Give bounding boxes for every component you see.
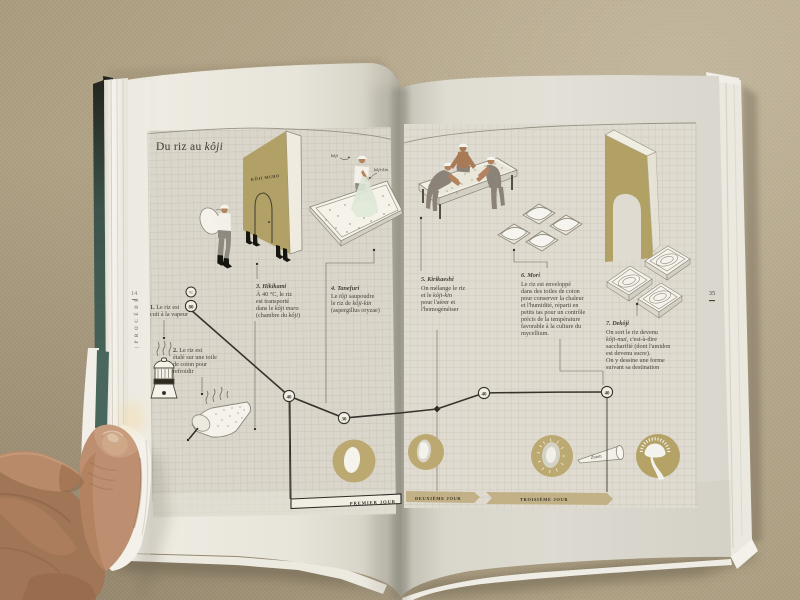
svg-text:cuit à la vapeur: cuit à la vapeur [150,311,188,318]
svg-text:est devenu sucre).: est devenu sucre). [606,350,651,357]
svg-text:saccharifié (dont l'amidon: saccharifié (dont l'amidon [606,343,670,350]
svg-text:de coton pour: de coton pour [173,361,207,368]
svg-text:suivant sa destination: suivant sa destination [606,364,659,371]
svg-text:6. Mori: 6. Mori [521,272,540,279]
svg-text:DEUXIÈME JOUR: DEUXIÈME JOUR [415,496,461,501]
svg-text:1. Le riz est: 1. Le riz est [150,304,179,311]
svg-text:30: 30 [342,417,348,422]
svg-text:TROISIÈME JOUR: TROISIÈME JOUR [520,497,568,502]
svg-text:°C: °C [189,290,194,295]
svg-text:7. Dekôji: 7. Dekôji [606,320,629,327]
svg-text:est transporté: est transporté [256,298,289,305]
svg-text:pour conserver la chaleur: pour conserver la chaleur [521,295,584,302]
svg-text:5. Kirikaeshi: 5. Kirikaeshi [421,276,454,283]
svg-text:étalé sur une toile: étalé sur une toile [173,354,217,361]
svg-text:3. Hikikami: 3. Hikikami [255,283,287,290]
svg-text:À 40 °C, le riz: À 40 °C, le riz [256,290,292,298]
svg-text:dans le kôji muro: dans le kôji muro [256,305,299,312]
svg-text:et le kôji-kin: et le kôji-kin [421,292,452,299]
svg-text:40: 40 [482,392,488,397]
svg-text:précis de la température: précis de la température [521,316,581,323]
svg-text:Du riz au kôji: Du riz au kôji [156,141,223,153]
svg-text:refroidir: refroidir [173,368,194,375]
svg-text:2. Le riz est: 2. Le riz est [173,347,202,354]
svg-text:petits tas pour un contrôle: petits tas pour un contrôle [521,309,586,316]
svg-text:On mélange le riz: On mélange le riz [421,285,465,292]
svg-text:le riz de kôji-kin: le riz de kôji-kin [331,300,371,307]
svg-text:40: 40 [287,395,293,400]
svg-text:kôji-mai, c'est-à-dire: kôji-mai, c'est-à-dire [606,336,657,343]
svg-text:(aspergillus oryzae): (aspergillus oryzae) [331,307,380,314]
svg-text:On sort le riz devenu: On sort le riz devenu [606,329,658,336]
svg-text:et l'humidité, réparti en: et l'humidité, réparti en [521,302,578,309]
svg-text:Le tôji saupoudre: Le tôji saupoudre [331,293,375,300]
svg-text:pour l'aérer et: pour l'aérer et [421,299,455,306]
svg-text:dans des toiles de coton: dans des toiles de coton [521,288,580,295]
svg-text:80: 80 [189,305,195,310]
svg-text:kôji-kin: kôji-kin [374,167,389,172]
svg-text:4. Tanefuri: 4. Tanefuri [330,285,360,292]
svg-text:l'homogénéiser: l'homogénéiser [421,306,459,313]
svg-text:favorable à la culture du: favorable à la culture du [521,323,581,330]
svg-text:On y dessine une forme: On y dessine une forme [606,357,665,364]
svg-text:kôji: kôji [331,153,339,158]
svg-text:(chambre du kôji): (chambre du kôji) [256,312,300,319]
svg-text:35: 35 [709,290,716,297]
svg-text:mycellium.: mycellium. [521,330,549,337]
svg-text:Le riz est enveloppé: Le riz est enveloppé [521,281,571,288]
svg-text:40: 40 [605,391,611,396]
